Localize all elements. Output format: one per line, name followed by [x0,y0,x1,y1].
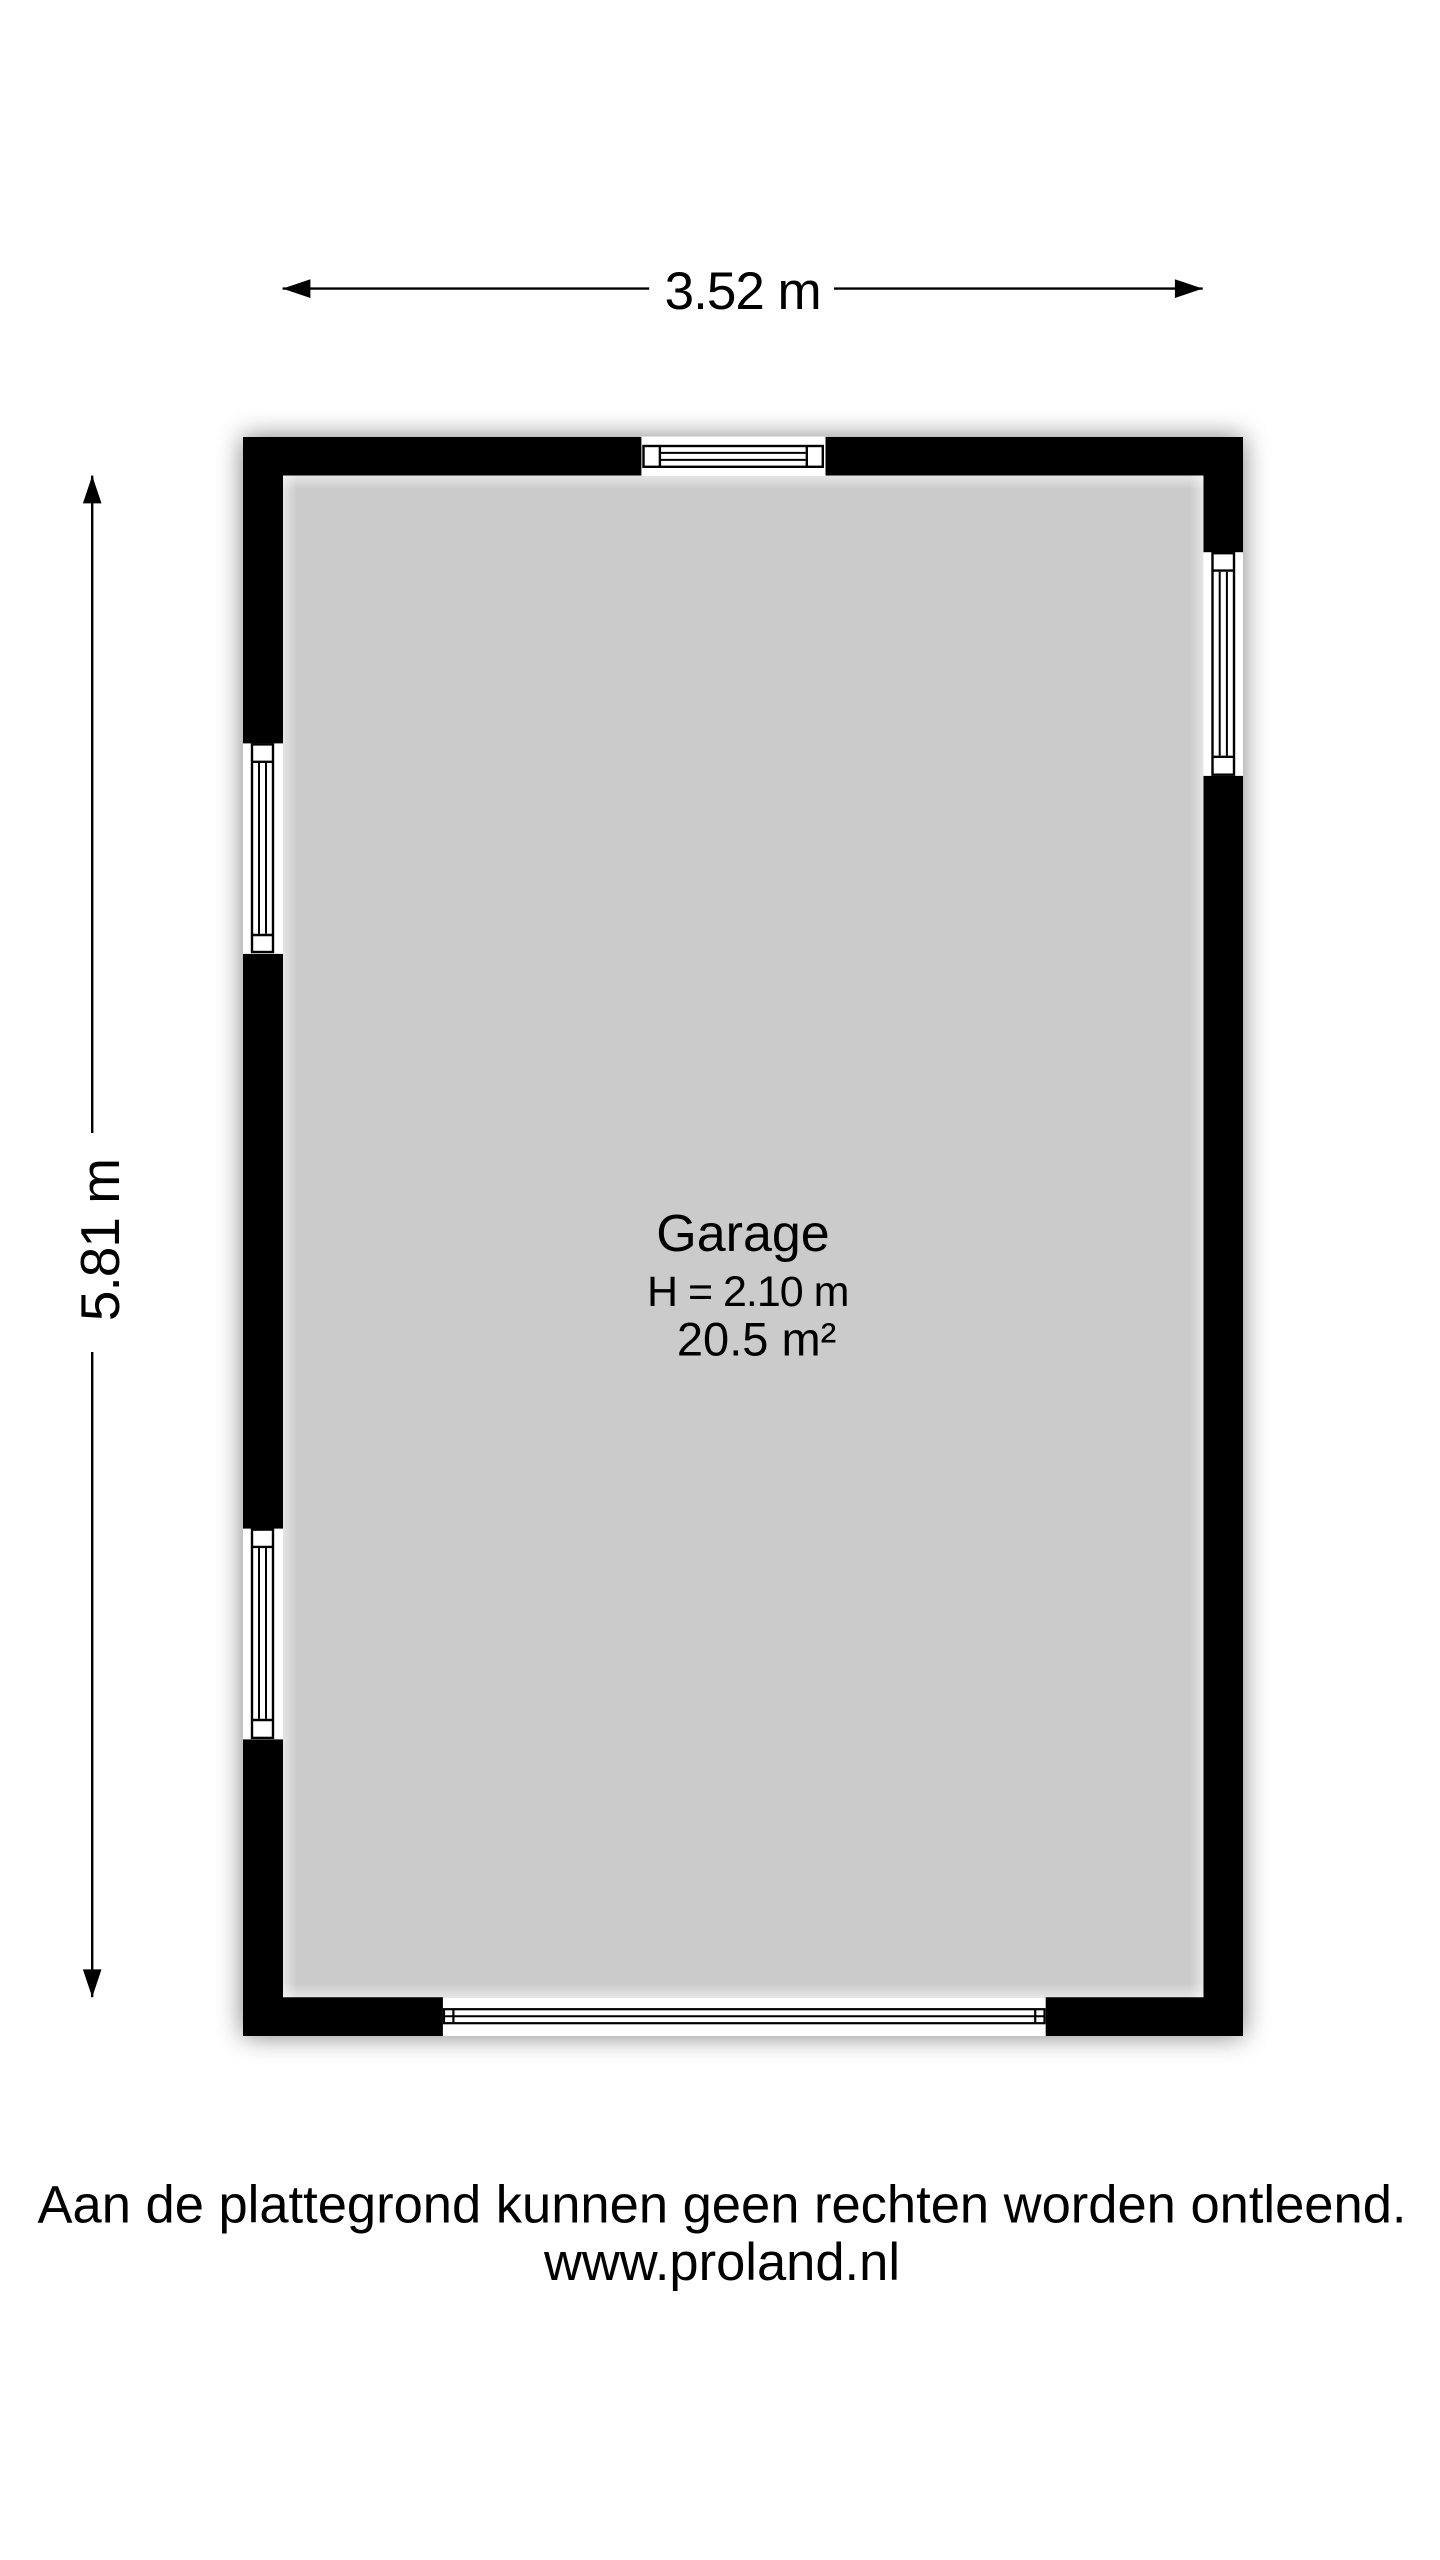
svg-text:www.proland.nl: www.proland.nl [543,2233,900,2292]
svg-text:5.81 m: 5.81 m [69,1159,131,1321]
svg-text:3.52 m: 3.52 m [665,262,821,321]
svg-text:Aan de plattegrond kunnen geen: Aan de plattegrond kunnen geen rechten w… [38,2176,1407,2235]
svg-text:Garage: Garage [656,1205,829,1263]
svg-text:H = 2.10 m: H = 2.10 m [647,1268,849,1316]
svg-text:20.5 m²: 20.5 m² [677,1313,836,1366]
